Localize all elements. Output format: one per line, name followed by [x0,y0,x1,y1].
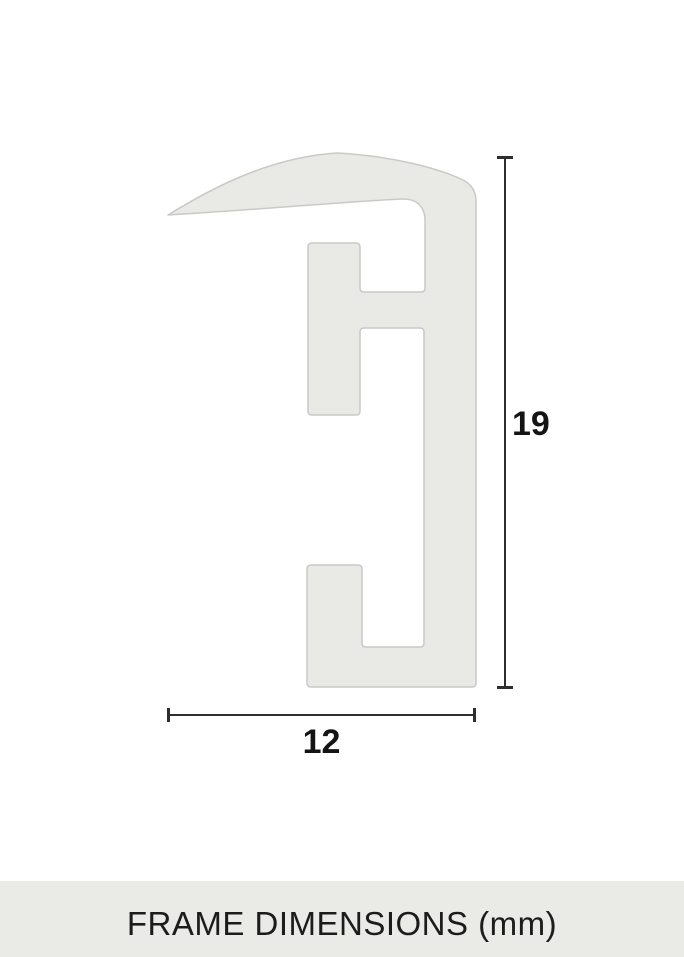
footer-title: FRAME DIMENSIONS (mm) [127,905,557,943]
height-dimension-line [497,157,513,688]
footer-bar: FRAME DIMENSIONS (mm) [0,881,684,957]
profile-cross-section-drawing [0,0,684,957]
width-dimension-label: 12 [168,725,475,759]
height-dimension-label: 19 [512,407,550,441]
width-dimension-line [168,708,475,722]
profile-shape [168,153,476,687]
profile-shape-outline [168,153,476,687]
frame-dimensions-diagram: 19 12 FRAME DIMENSIONS (mm) [0,0,684,957]
